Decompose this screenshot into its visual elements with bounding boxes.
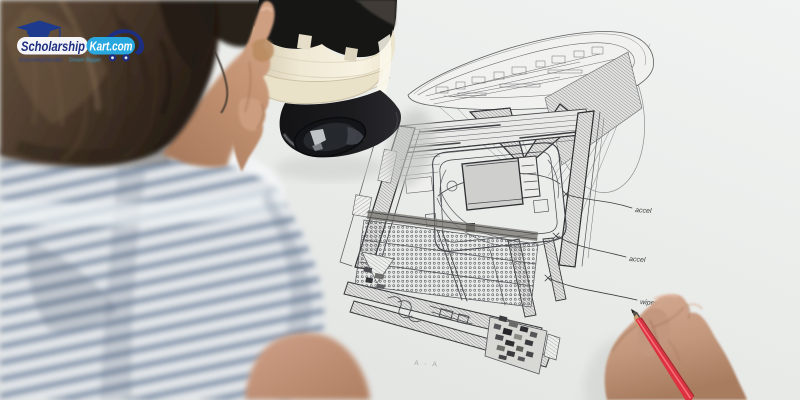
svg-text:Empowering Education: Empowering Education xyxy=(19,58,63,64)
svg-text:Scholarship: Scholarship xyxy=(21,39,85,54)
svg-text:Kart.com: Kart.com xyxy=(90,39,133,54)
svg-text:Dream Bigger: Dream Bigger xyxy=(69,58,101,64)
svg-text:accel: accel xyxy=(629,256,646,264)
svg-text:accel: accel xyxy=(635,207,652,215)
